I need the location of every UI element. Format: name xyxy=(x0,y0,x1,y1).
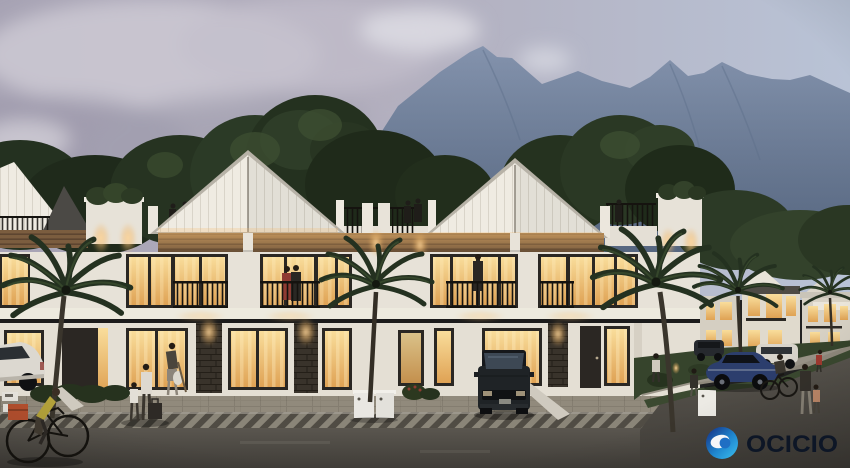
brand-text: OCICIO xyxy=(746,431,838,458)
architectural-render: OCICIO xyxy=(0,0,850,468)
ocicio-logo-icon xyxy=(706,427,738,459)
vignette xyxy=(0,0,850,468)
watermark: OCICIO xyxy=(706,427,838,459)
scene: OCICIO xyxy=(0,0,850,468)
